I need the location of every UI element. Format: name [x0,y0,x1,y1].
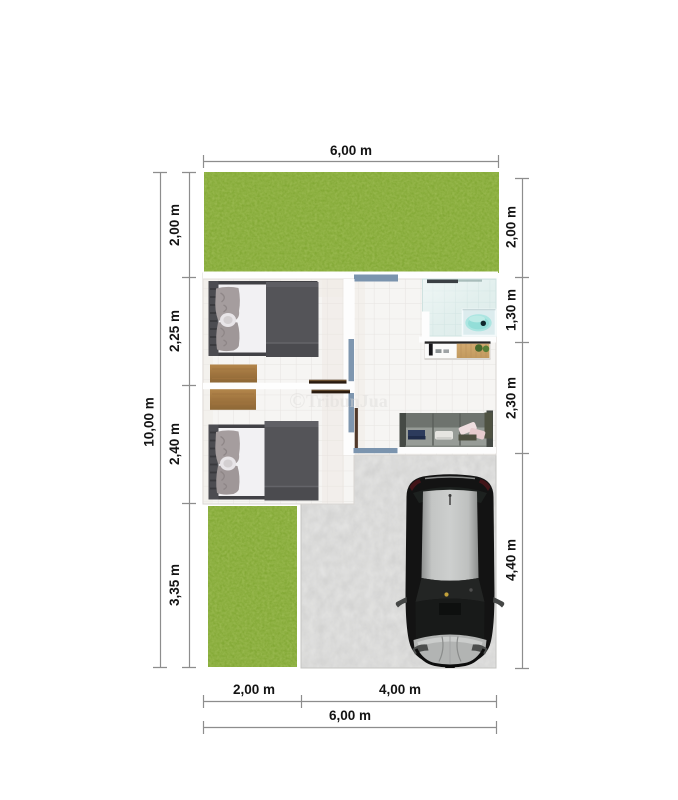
svg-text:1,30 m: 1,30 m [504,289,519,331]
svg-text:2,25 m: 2,25 m [167,310,182,352]
svg-text:2,00 m: 2,00 m [167,204,182,246]
svg-text:TribunJua: TribunJua [306,391,388,411]
svg-text:2,00 m: 2,00 m [504,206,519,248]
svg-text:©: © [289,388,305,413]
svg-text:2,00 m: 2,00 m [233,682,275,697]
svg-text:2,40 m: 2,40 m [167,423,182,465]
svg-text:4,40 m: 4,40 m [504,539,519,581]
svg-text:2,30 m: 2,30 m [504,377,519,419]
svg-text:3,35 m: 3,35 m [167,564,182,606]
svg-text:6,00 m: 6,00 m [330,143,372,158]
svg-text:10,00 m: 10,00 m [142,397,157,447]
svg-text:6,00 m: 6,00 m [329,708,371,723]
svg-text:4,00 m: 4,00 m [379,682,421,697]
